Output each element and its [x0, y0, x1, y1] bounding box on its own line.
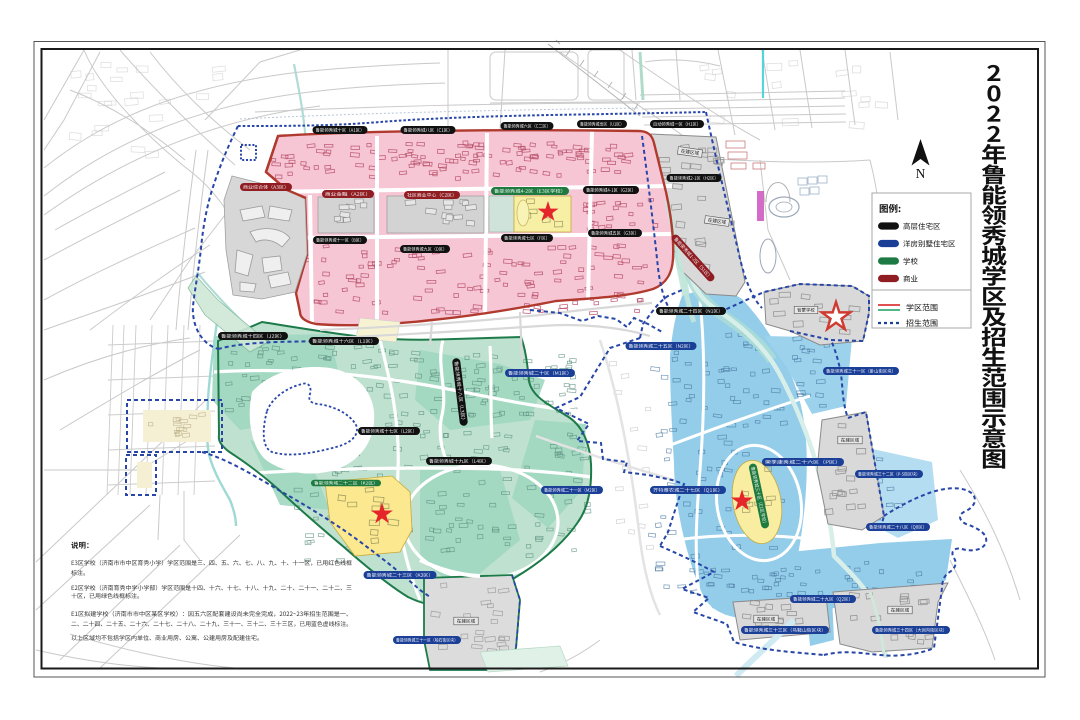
svg-text:N: N [916, 166, 926, 181]
